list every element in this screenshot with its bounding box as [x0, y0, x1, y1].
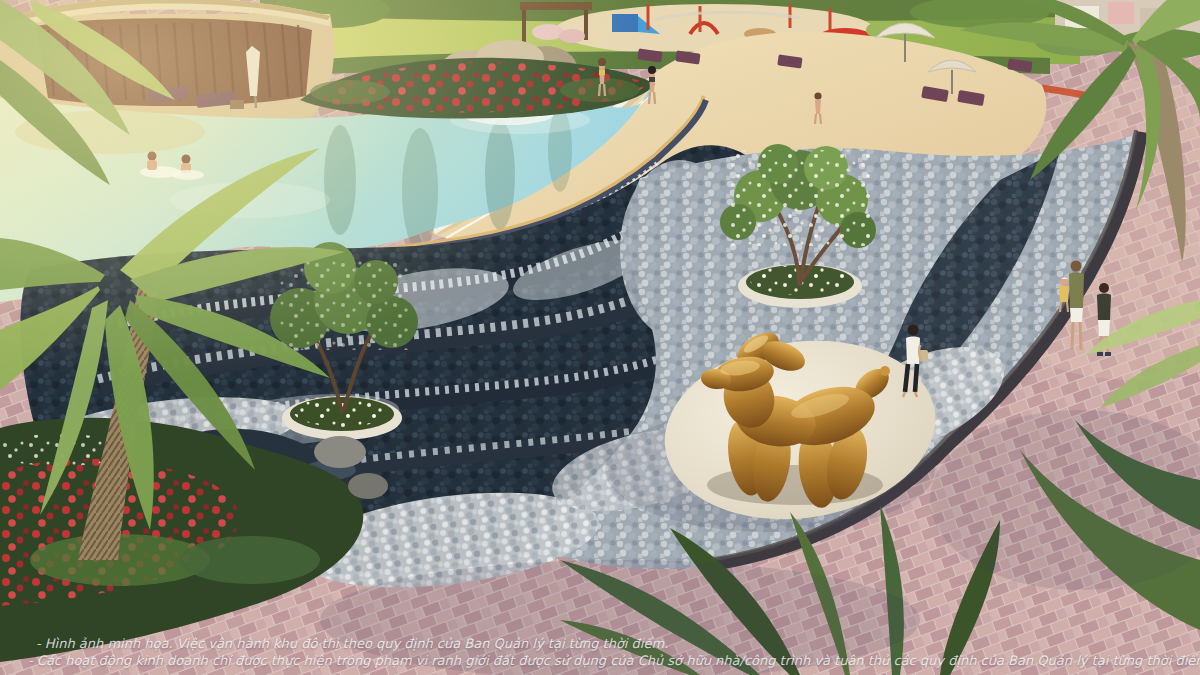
scene-canvas: , [0, 0, 1200, 675]
frangipani-tree [720, 144, 876, 308]
resort-render: , [0, 0, 1200, 675]
